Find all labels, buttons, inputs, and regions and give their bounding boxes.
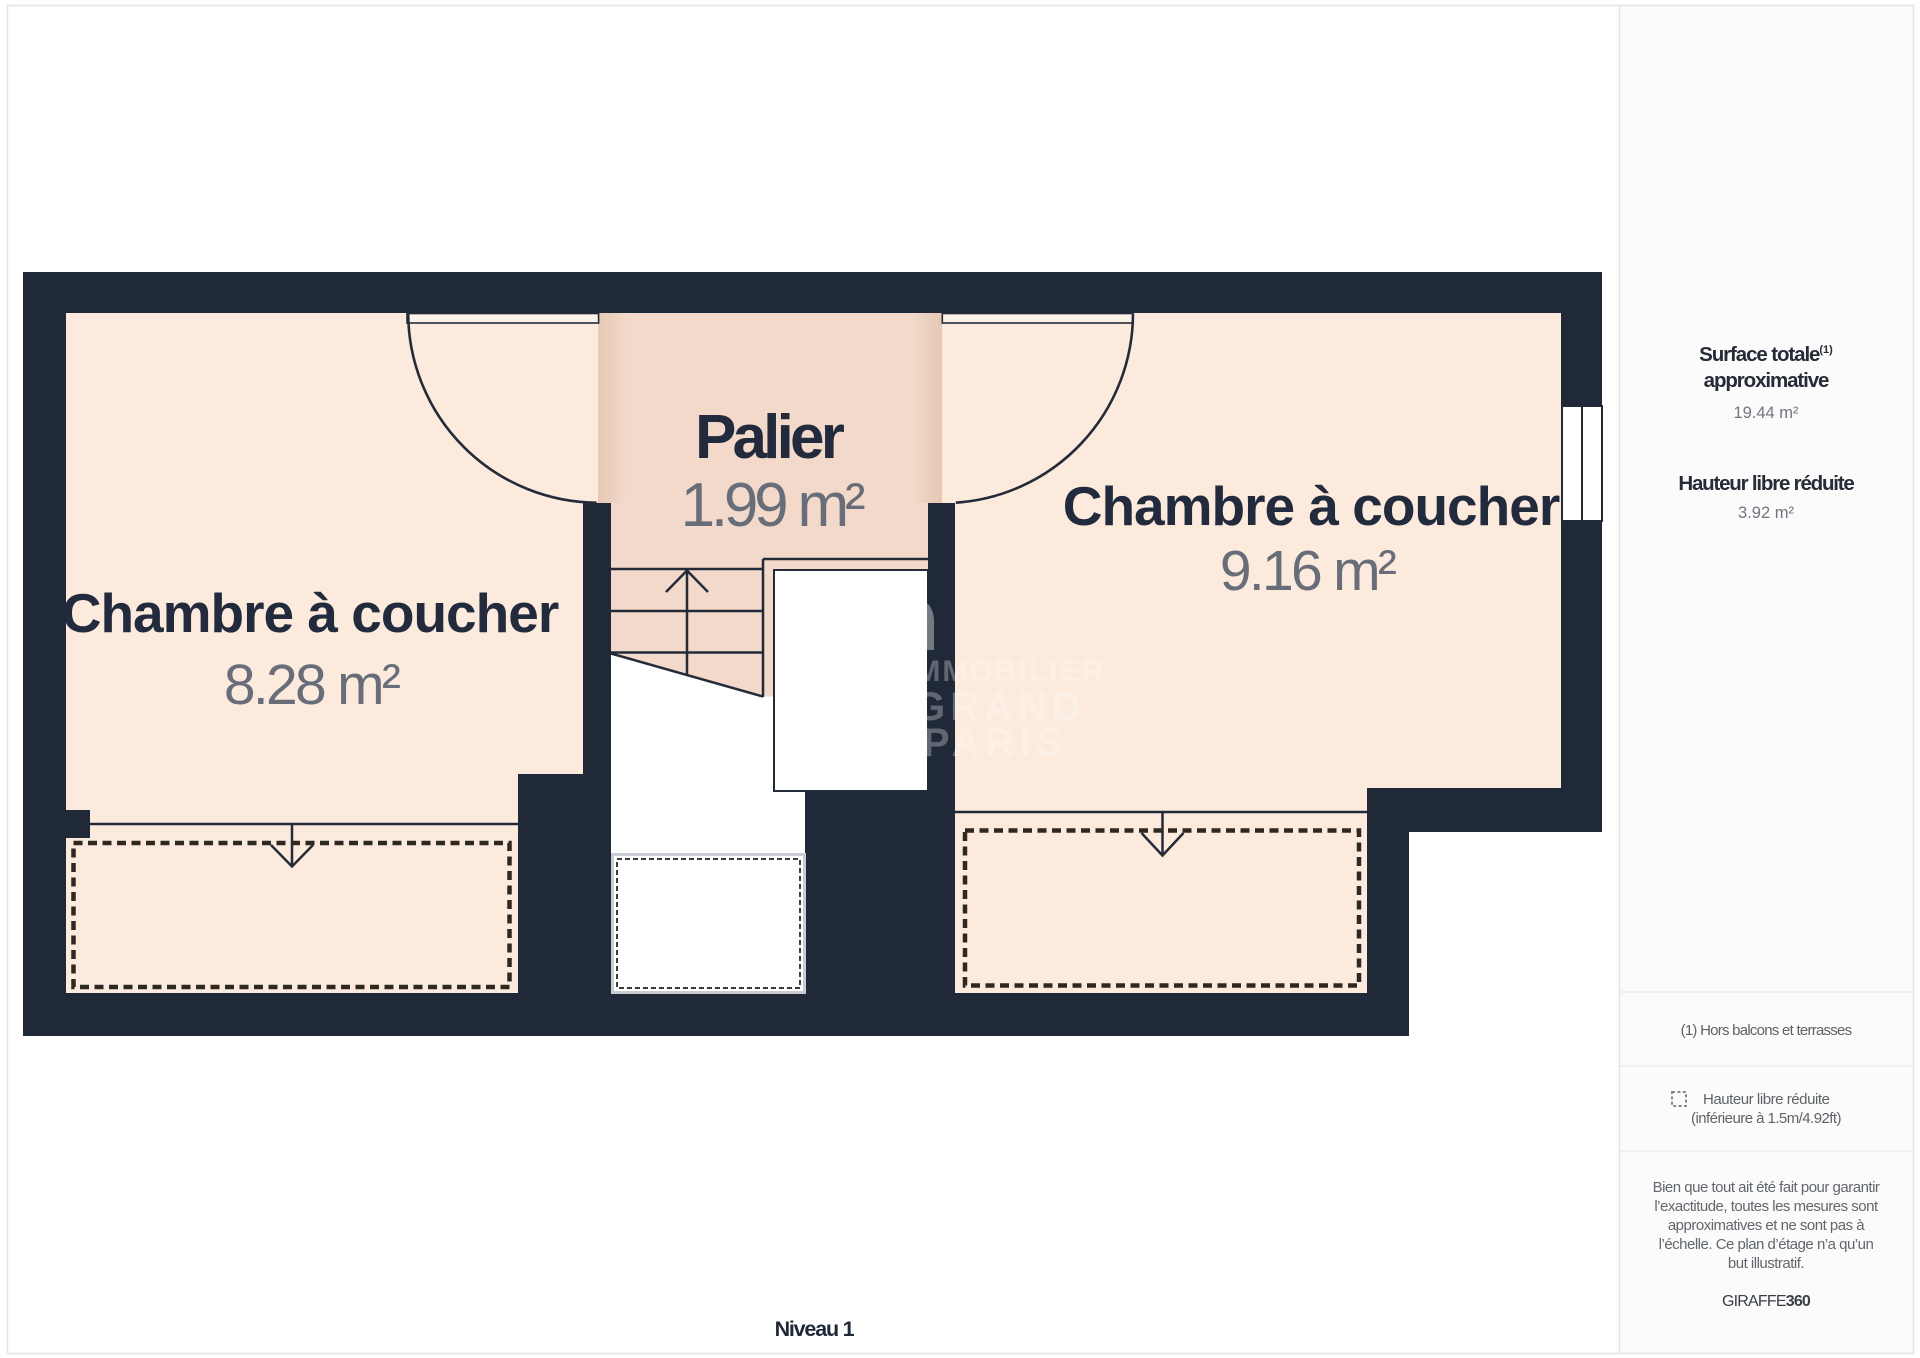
svg-text:(inférieure à 1.5m/4.92ft): (inférieure à 1.5m/4.92ft) <box>1691 1110 1842 1127</box>
svg-text:but illustratif.: but illustratif. <box>1728 1255 1804 1272</box>
svg-text:Chambre à coucher: Chambre à coucher <box>62 582 559 644</box>
svg-text:l’échelle. Ce plan d’étage n’a: l’échelle. Ce plan d’étage n’a qu’un <box>1659 1236 1874 1253</box>
svg-text:approximative: approximative <box>1704 369 1829 392</box>
svg-text:Chambre à coucher: Chambre à coucher <box>1063 475 1560 537</box>
svg-text:9.16 m²: 9.16 m² <box>1220 539 1396 603</box>
svg-text:l’exactitude, toutes les mesur: l’exactitude, toutes les mesures sont <box>1654 1198 1879 1215</box>
svg-text:PARIS: PARIS <box>923 721 1067 765</box>
svg-text:Palier: Palier <box>695 403 845 472</box>
svg-text:GIRAFFE360: GIRAFFE360 <box>1722 1293 1811 1310</box>
svg-text:8.28 m²: 8.28 m² <box>224 653 400 717</box>
svg-text:(1) Hors balcons et terrasses: (1) Hors balcons et terrasses <box>1681 1022 1852 1039</box>
svg-text:19.44 m²: 19.44 m² <box>1733 404 1799 422</box>
svg-text:Niveau 1: Niveau 1 <box>775 1317 855 1341</box>
svg-text:IMMOBILIER: IMMOBILIER <box>905 655 1105 688</box>
svg-text:3.92 m²: 3.92 m² <box>1738 504 1794 522</box>
svg-text:Bien que tout ait été fait pou: Bien que tout ait été fait pour garantir <box>1653 1179 1880 1196</box>
svg-text:1.99 m²: 1.99 m² <box>681 471 865 540</box>
svg-text:Hauteur libre réduite: Hauteur libre réduite <box>1678 472 1854 495</box>
svg-text:Surface totale(1): Surface totale(1) <box>1699 343 1833 366</box>
svg-text:Hauteur libre réduite: Hauteur libre réduite <box>1703 1091 1830 1108</box>
svg-text:approximatives et ne sont pas: approximatives et ne sont pas à <box>1668 1217 1865 1234</box>
